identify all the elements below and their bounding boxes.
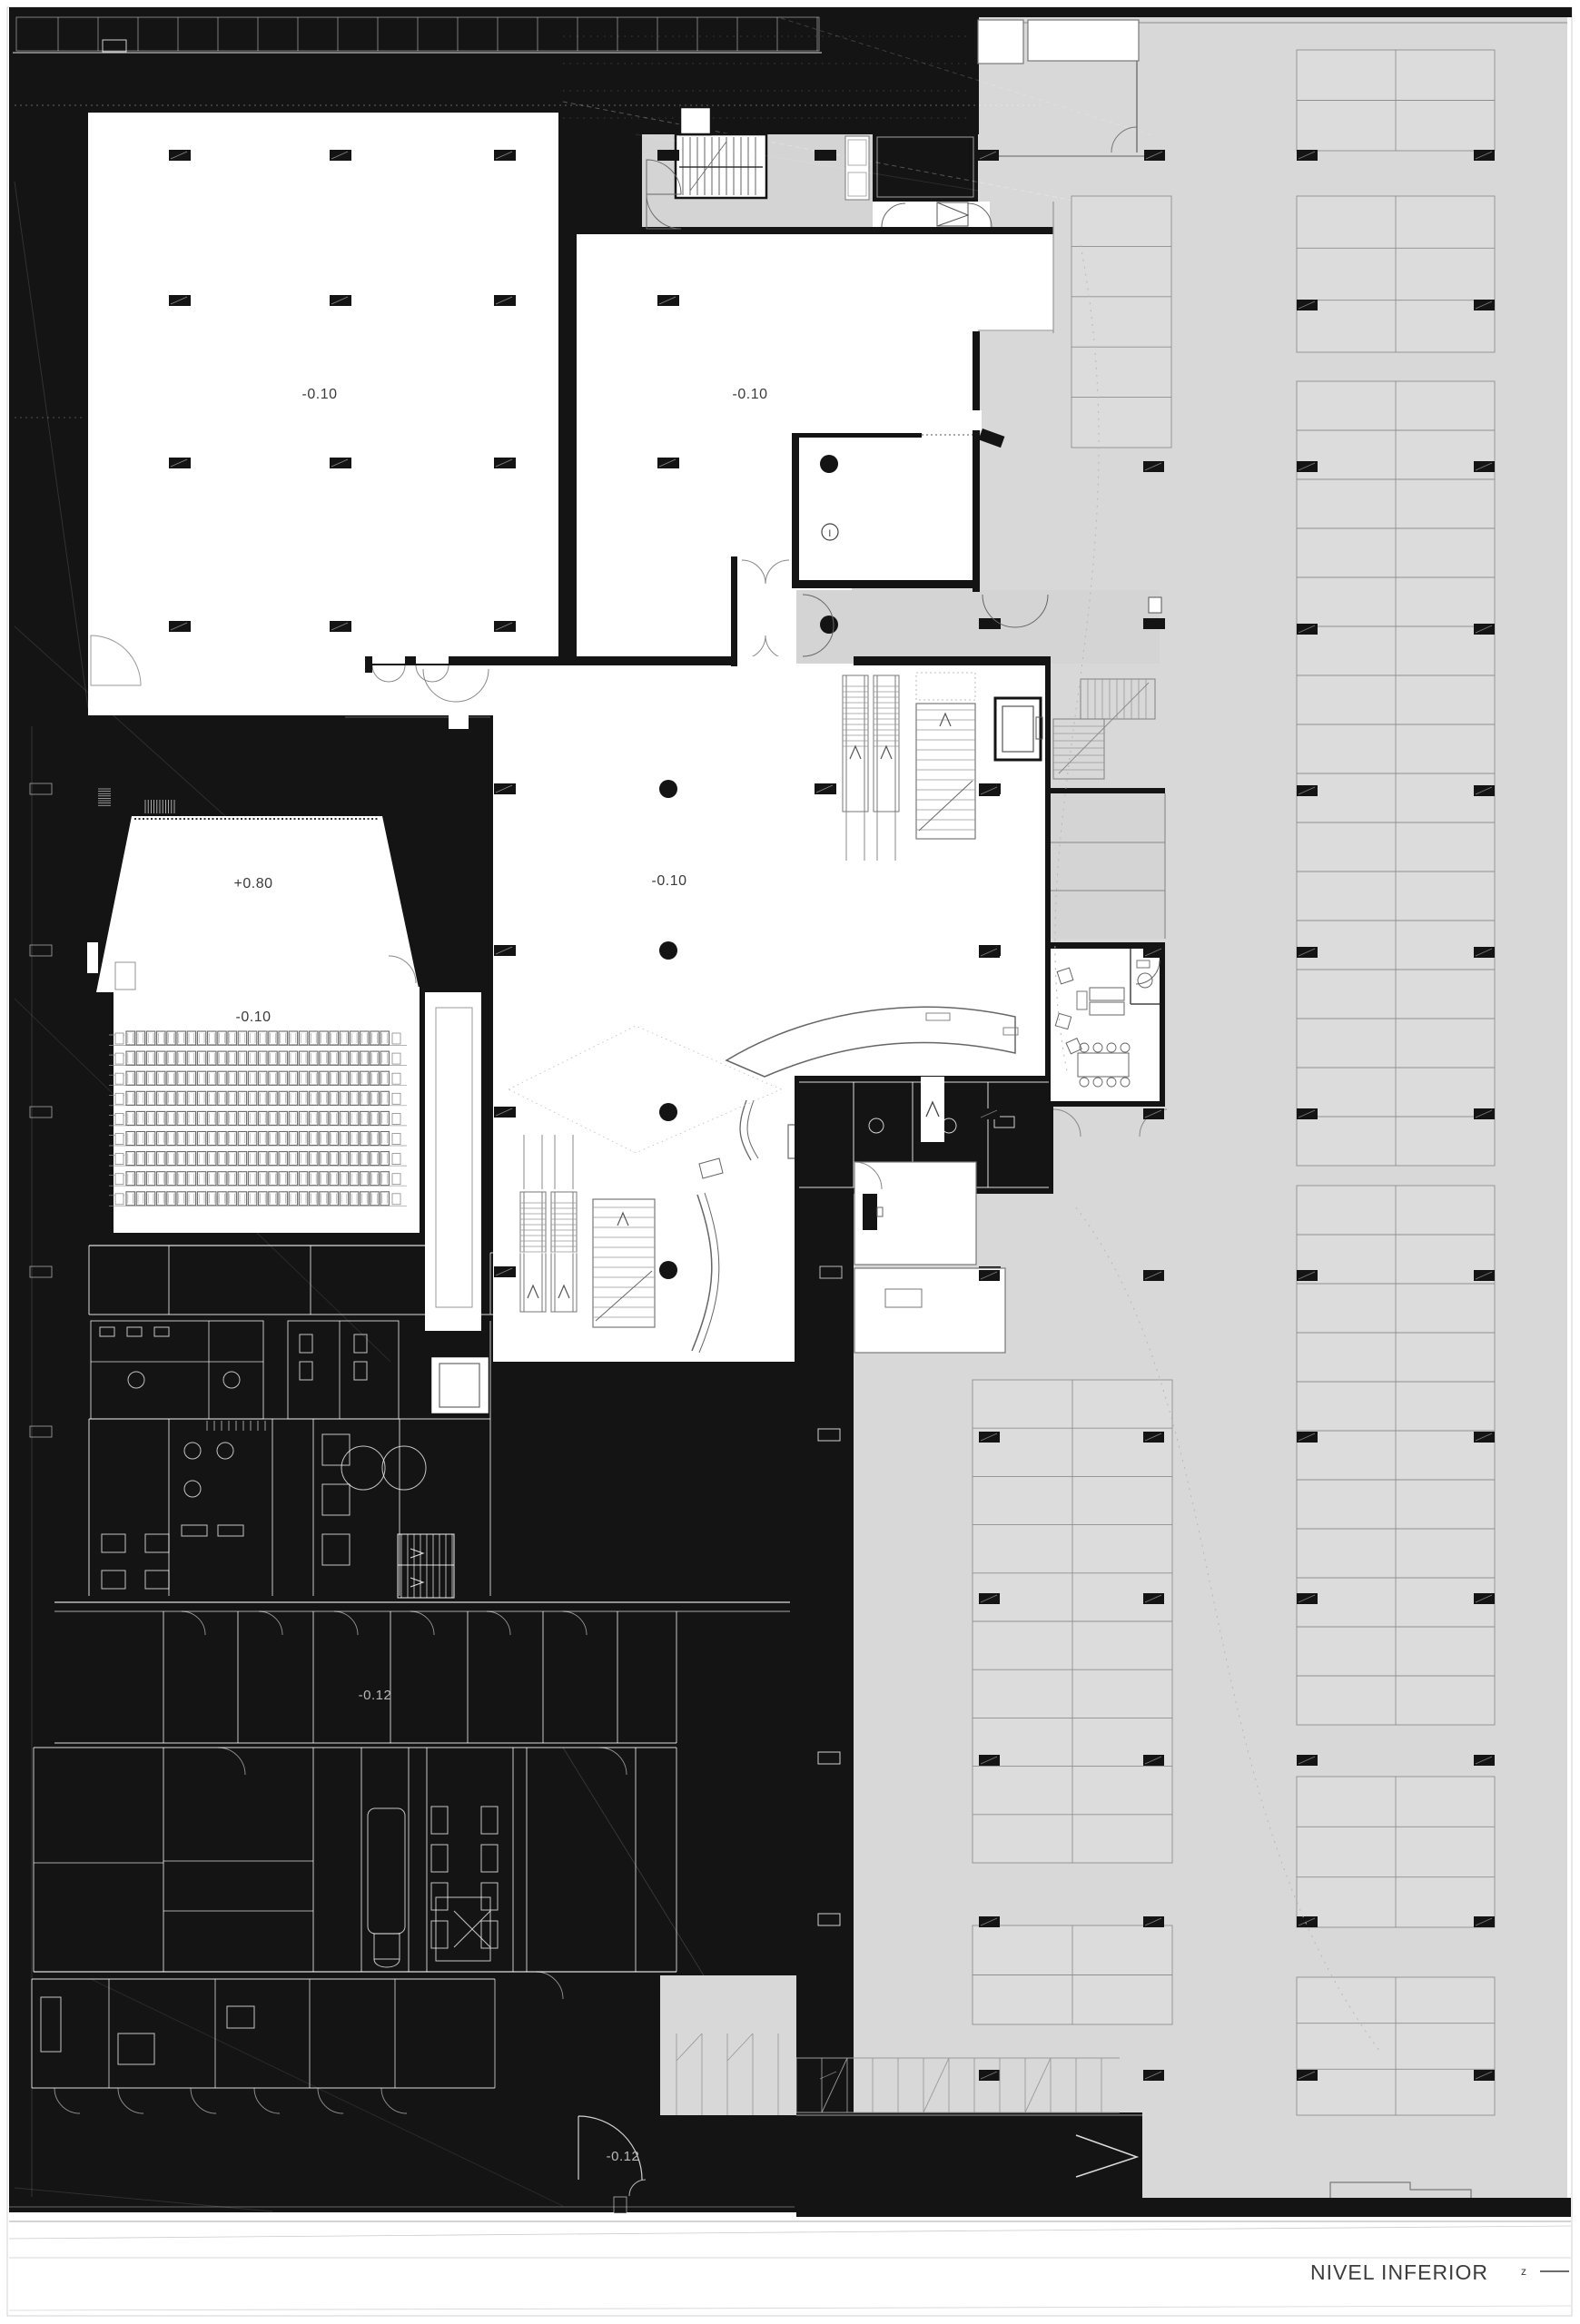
svg-text:NIVEL INFERIOR: NIVEL INFERIOR: [1310, 2260, 1488, 2284]
svg-text:-0.10: -0.10: [652, 873, 687, 889]
svg-text:-0.12: -0.12: [607, 2149, 640, 2164]
svg-text:-0.10: -0.10: [302, 387, 338, 402]
svg-text:-0.10: -0.10: [236, 1009, 272, 1025]
svg-text:-0.12: -0.12: [359, 1688, 392, 1703]
svg-text:z: z: [1521, 2265, 1526, 2278]
svg-text:-0.10: -0.10: [733, 387, 768, 402]
svg-text:I: I: [828, 528, 832, 539]
svg-text:+0.80: +0.80: [234, 876, 273, 891]
